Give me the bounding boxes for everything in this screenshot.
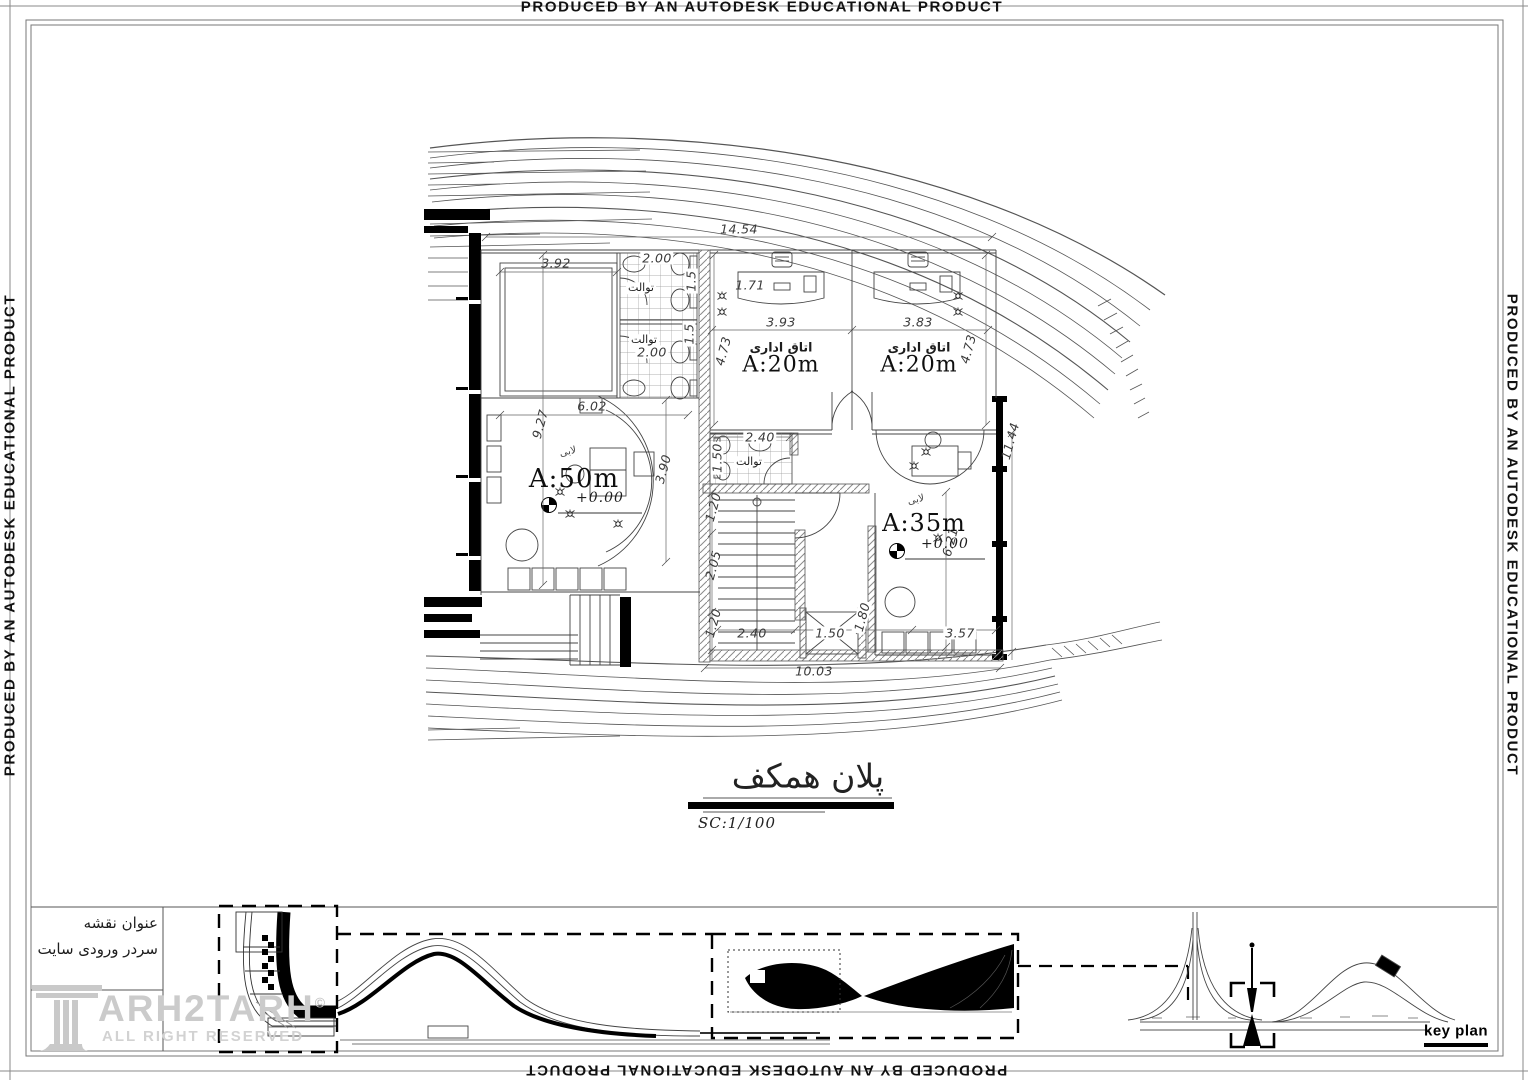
dim-stair-width: 2.40 [737, 626, 766, 641]
dim-wc-top-width: 2.00 [640, 251, 673, 264]
room-office2-area: A:20m [880, 353, 957, 378]
section-box-bowtie [337, 934, 1188, 1038]
dim-wc-bottom-depth: 1.5 [682, 321, 695, 346]
dim-office2-width: 3.83 [903, 315, 932, 330]
dim-lobby-width: 6.02 [577, 399, 606, 414]
watermark-right: PRODUCED BY AN AUTODESK EDUCATIONAL PROD… [1504, 294, 1521, 776]
room-office1-area: A:20m [742, 353, 819, 378]
plan-linework [0, 0, 1528, 1080]
plan-title: پلان همکف [732, 757, 884, 796]
dim-elevator-width: 1.50 [813, 626, 846, 639]
dim-top-total: 14.54 [720, 222, 758, 237]
watermark-left: PRODUCED BY AN AUTODESK EDUCATIONAL PROD… [2, 294, 19, 776]
keyplan-label: key plan [1424, 1023, 1488, 1040]
dim-wc-mid-width: 2.40 [743, 430, 776, 443]
brand-logo: ARH2TARH© [98, 988, 327, 1030]
dim-wc-bottom-width: 2.00 [635, 345, 668, 358]
copyright-mark: © [315, 995, 327, 1011]
room-hall-level: +0.00 [921, 536, 969, 552]
dim-wc-mid-depth: 1.50 [710, 441, 723, 474]
dim-wc-top-depth: 1.5 [684, 268, 697, 293]
sheet-frame [0, 0, 1528, 1080]
dim-hall-width: 3.57 [943, 626, 976, 639]
title-rule [688, 798, 894, 812]
dim-storage-width: 3.92 [541, 256, 570, 271]
column-logo-icon [32, 985, 102, 1051]
dim-bottom-total: 10.03 [795, 664, 833, 679]
dim-entry: 1.71 [735, 278, 764, 293]
watermark-top: PRODUCED BY AN AUTODESK EDUCATIONAL PROD… [521, 0, 1003, 16]
brand-text: ARH2TARH [98, 988, 315, 1029]
titleblock-drawing-name: سردر ورودی سایت [30, 940, 158, 958]
room-wc-bottom-label: توالت [629, 334, 659, 346]
titleblock-heading: عنوان نقشه [38, 914, 158, 932]
room-wc-mid-label: توالت [734, 456, 764, 468]
dim-office1-width: 3.93 [766, 315, 795, 330]
room-hall-area: A:35m [882, 509, 966, 537]
brand-rights: ALL RIGHT RESERVED [102, 1028, 304, 1045]
room-wc-top-label: توالت [626, 282, 656, 294]
canopy-bottom [426, 622, 1162, 740]
drawing-sheet: PRODUCED BY AN AUTODESK EDUCATIONAL PROD… [0, 0, 1528, 1080]
watermark-bottom: PRODUCED BY AN AUTODESK EDUCATIONAL PROD… [525, 1062, 1007, 1079]
room-lobby-level: +0.00 [576, 490, 624, 506]
plan-scale: SC:1/100 [698, 814, 776, 832]
